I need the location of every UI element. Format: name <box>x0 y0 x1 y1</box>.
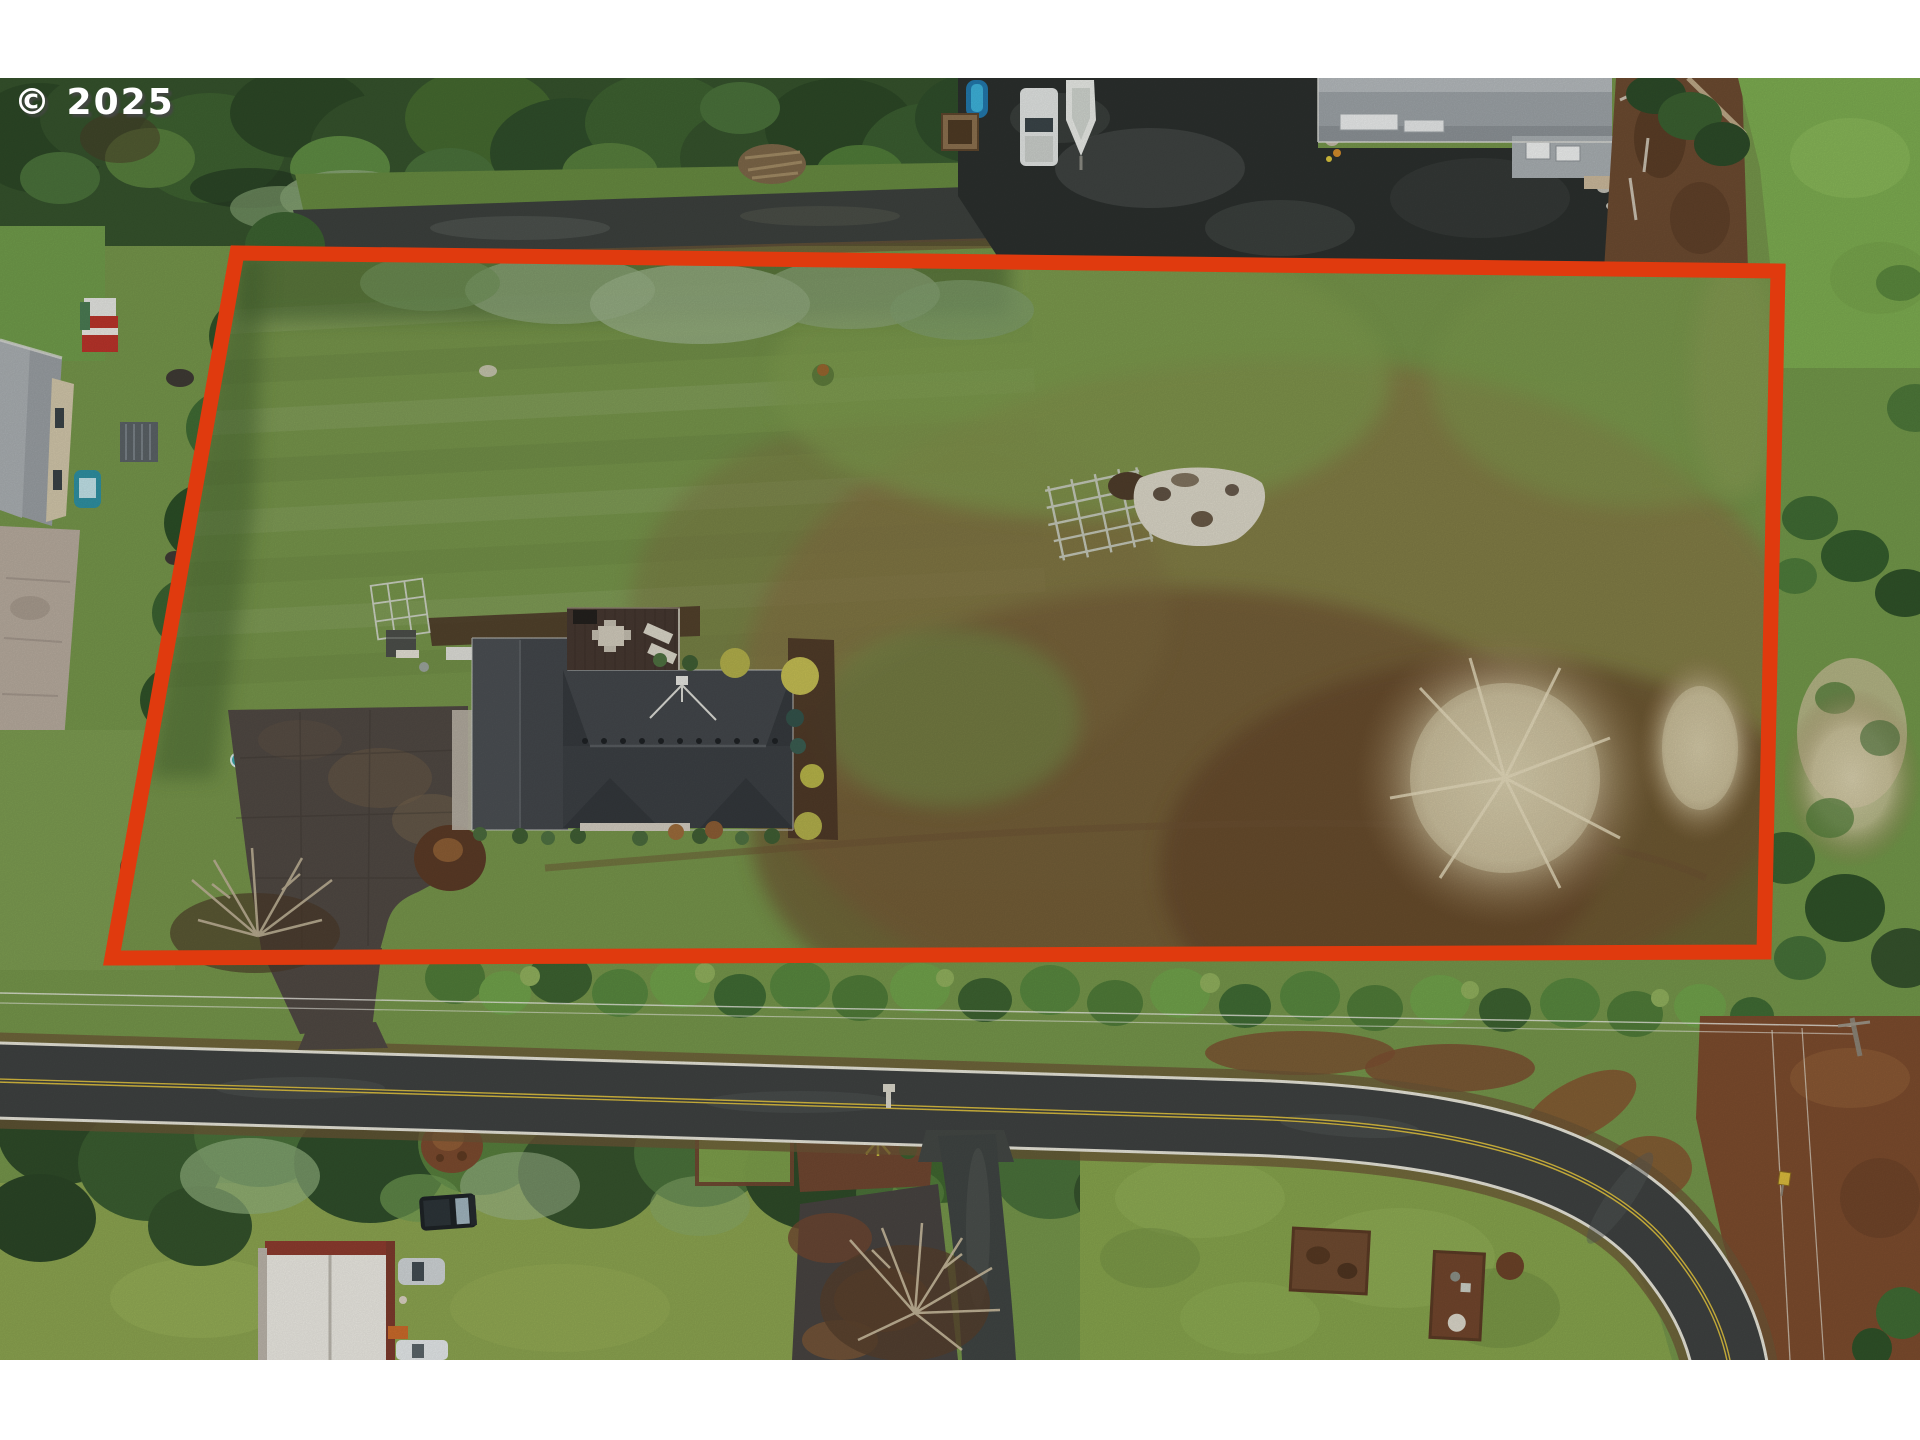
letterbox-bar-top <box>0 0 1920 78</box>
letterbox-bar-bottom <box>0 1360 1920 1440</box>
copyright-watermark: © 2025 <box>14 82 175 123</box>
aerial-photo: © 2025 <box>0 78 1920 1360</box>
aerial-photo-svg <box>0 78 1920 1360</box>
